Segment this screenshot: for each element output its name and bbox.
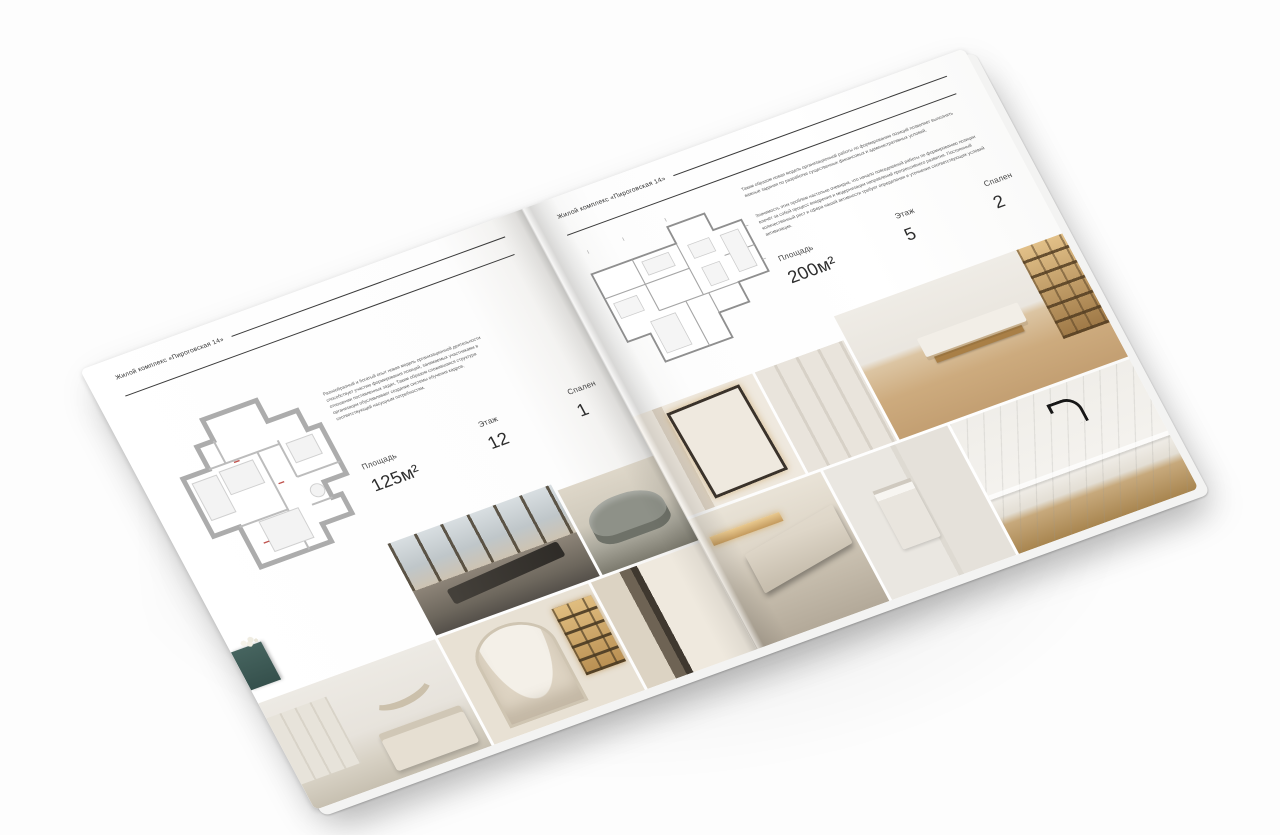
stat-area: Площадь 200м² [777,238,841,287]
stat-floor-value: 5 [901,220,930,245]
stat-bedrooms-label: Спален [982,170,1014,188]
left-description: Разнообразный и богатый опыт новая модел… [322,331,506,423]
desk [917,303,1027,358]
stat-bedrooms-label: Спален [566,379,598,397]
stat-floor: Этаж 12 [477,414,514,454]
stat-floor: Этаж 5 [893,206,929,245]
right-page-title: Жилой комплекс «Пироговская 14» [556,175,667,220]
stat-floor-label: Этаж [477,414,500,429]
armchair-shape [581,482,676,549]
marble-counter-edge [988,430,1170,500]
black-faucet [1048,394,1089,429]
stat-bedrooms: Спален 1 [566,379,611,422]
stat-bedrooms-value: 1 [573,393,610,421]
scene: Жилой комплекс «Пироговская 14» Разнообр… [0,0,1280,835]
header-rule-top [231,236,505,337]
wall-garland [359,661,438,719]
left-page-title: Жилой комплекс «Пироговская 14» [114,336,225,381]
towel-rail [875,482,941,550]
stat-floor-value: 12 [484,428,513,453]
stat-bedrooms-value: 2 [990,185,1027,213]
stat-floor-label: Этаж [893,206,916,221]
stat-area: Площадь 125м² [360,447,424,496]
stat-bedrooms: Спален 2 [982,170,1027,213]
bed-bench [447,541,566,604]
